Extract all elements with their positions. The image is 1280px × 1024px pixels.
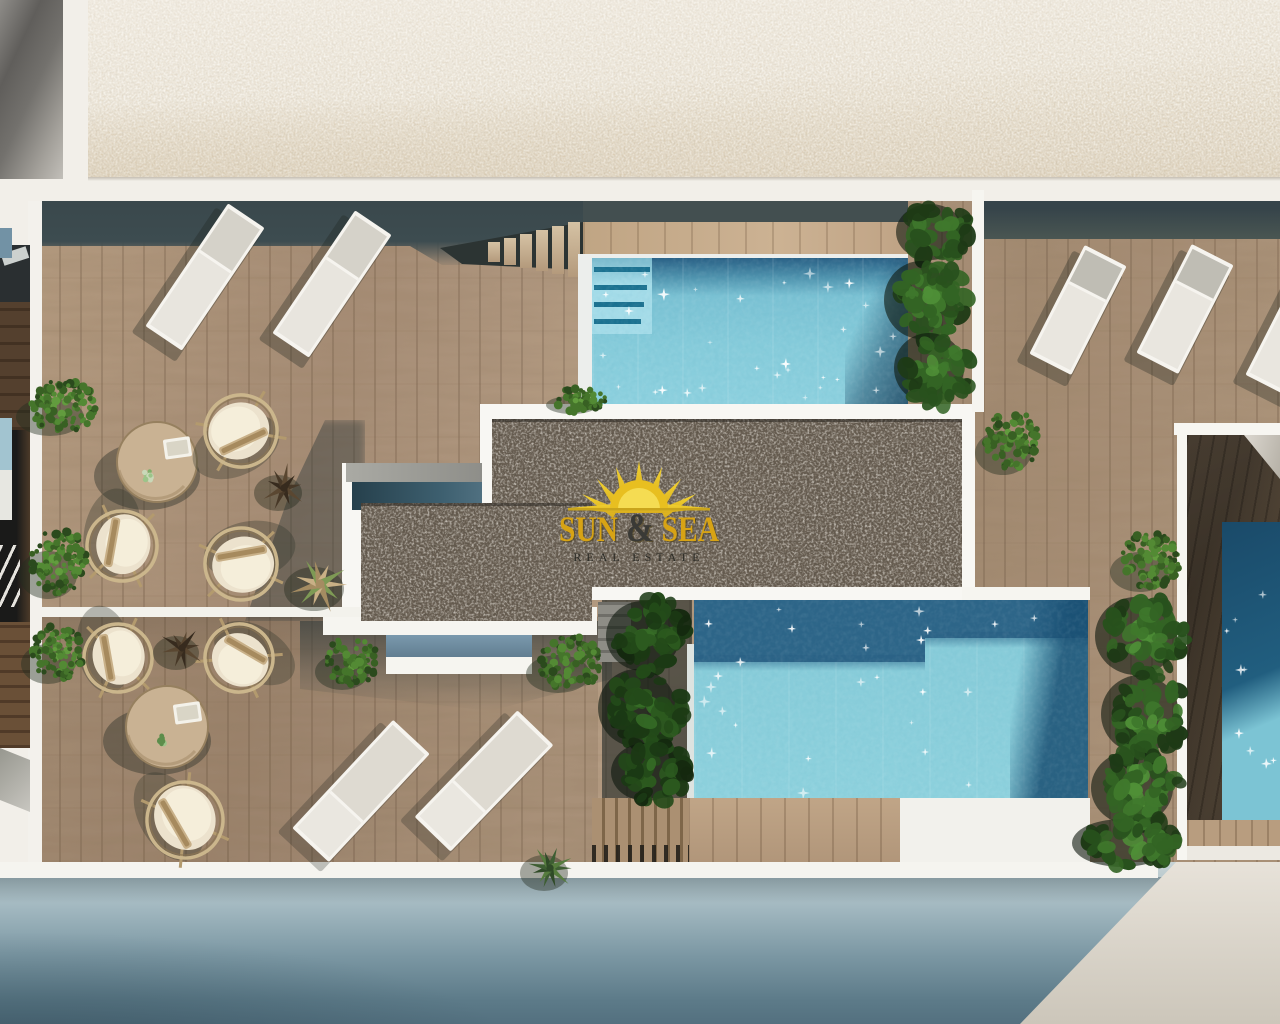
svg-text:SUN & SEA: SUN & SEA [559,505,719,550]
svg-text:REAL ESTATE: REAL ESTATE [573,550,704,564]
